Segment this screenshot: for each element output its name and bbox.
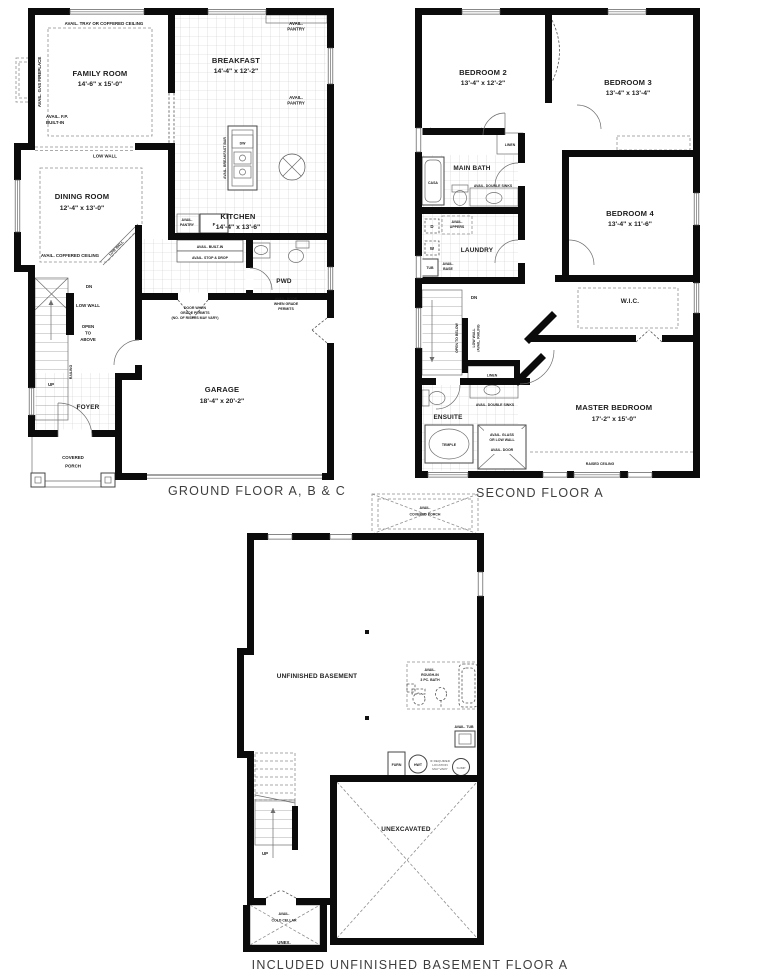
covered-porch-label: COVEREDPORCH: [62, 455, 84, 469]
floor-plan-sheet: AVAIL. TRAY OR COFFERED CEILING FAMILY R…: [0, 0, 767, 976]
unfinished-basement-label: UNFINISHED BASEMENT: [277, 673, 358, 680]
pantry-note-top: AVAIL.PANTRY: [287, 21, 305, 32]
dryer-label: D: [430, 224, 433, 229]
double-sinks-label-2: AVAIL. DOUBLE SINKS: [476, 403, 515, 407]
basement-tub-box: [455, 731, 475, 747]
garage-dims: 18'-4" x 20'-2": [200, 398, 244, 405]
dn-label-2f: DN: [471, 295, 477, 300]
open-to-below-note: OPEN TO BELOW: [455, 322, 459, 352]
basement-windows: [266, 533, 485, 906]
dishwasher-label: DW: [240, 142, 247, 146]
basement-fixtures: [255, 630, 475, 858]
bed2-label: BEDROOM 2: [459, 68, 507, 77]
stop-drop-note: AVAIL. STOP & DROP: [192, 256, 229, 260]
breakfast-bar-note: AVAIL. BREAKFAST BAR: [223, 137, 227, 179]
open-to-above-note: OPENTOABOVE: [80, 324, 96, 342]
fridge-label: F: [213, 222, 216, 227]
railing-note: RAILING: [69, 365, 73, 380]
hwt-label: HWT: [414, 763, 423, 767]
main-bath-label: MAIN BATH: [453, 165, 490, 172]
builtin-note: AVAIL. BUILT-IN: [197, 245, 224, 249]
coffered-ceiling-note: AVAIL. COFFERED CEILING: [41, 253, 100, 258]
casa-tub-label: CASA: [428, 181, 438, 185]
support-post-2: [365, 716, 369, 720]
master-dims: 17'-2" x 15'-0": [592, 416, 636, 423]
ground-floor-plan: AVAIL. TRAY OR COFFERED CEILING FAMILY R…: [14, 8, 347, 499]
linen1-label: LINEN: [505, 143, 516, 147]
avail-door-note: AVAIL. DOOR: [491, 448, 514, 452]
avail-covered-porch-note: AVAIL.COVERED PORCH: [410, 506, 441, 517]
master-label: MASTER BEDROOM: [576, 403, 653, 412]
breakfast-dims: 14'-4" x 12'-2": [214, 68, 258, 75]
gas-fireplace-note: AVAIL. GAS FIREPLACE: [37, 57, 42, 108]
avail-door-grade-note: AVAIL. DOORWHEN GRADEPERMITS: [274, 297, 299, 311]
avail-base-note: AVAIL.BASE: [443, 262, 454, 271]
up-label: UP: [48, 382, 54, 387]
bed3-dims: 13'-4" x 13'-4": [606, 90, 650, 97]
low-wall-railing-note: LOW WALL/AVAIL. RAILING: [472, 324, 481, 352]
wic-label: W.I.C.: [621, 298, 640, 305]
wic-shelving: [578, 288, 678, 328]
furnace-label: FURN: [392, 763, 402, 767]
ground-floor-caption: GROUND FLOOR A, B & C: [168, 484, 346, 498]
ensuite-label: ENSUITE: [433, 414, 463, 421]
foyer-label: FOYER: [76, 404, 99, 411]
dn-label: DN: [86, 284, 92, 289]
basement-plan: AVAIL.COVERED PORCH UNFINISHED BASEMENT …: [237, 494, 568, 972]
low-wall-note-family: LOW WALL: [93, 154, 117, 159]
basement-stairs: [255, 753, 295, 858]
family-room-dims: 14'-6" x 15'-0": [78, 81, 122, 88]
bed3-label: BEDROOM 3: [604, 78, 652, 87]
bed3-closet: [617, 136, 690, 150]
second-floor-plan: BEDROOM 2 13'-4" x 12'-2" BEDROOM 3 13'-…: [415, 8, 701, 501]
dining-room-dims: 12'-4" x 13'-0": [60, 205, 104, 212]
cold-cellar-label: AVAIL.COLD CELLAR: [271, 912, 297, 923]
laundry-tub-label: TUB: [426, 266, 434, 270]
breakfast-label: BREAKFAST: [212, 56, 260, 65]
dining-room-label: DINING ROOM: [55, 192, 110, 201]
linen2-label: LINEN: [487, 374, 498, 378]
low-wall-note-diag: LOW WALL: [108, 240, 125, 257]
up-label-basement: UP: [262, 851, 268, 856]
basement-caption: INCLUDED UNFINISHED BASEMENT FLOOR A: [252, 958, 569, 972]
bed4-dims: 13'-4" x 11'-6": [608, 221, 652, 228]
raised-ceiling-note: RAISED CEILING: [586, 462, 615, 466]
covered-porch-structure: [31, 437, 115, 487]
second-floor-caption: SECOND FLOOR A: [476, 486, 604, 500]
pantry-note-mid: AVAIL.PANTRY: [287, 95, 305, 106]
floor-plan-drawing: AVAIL. TRAY OR COFFERED CEILING FAMILY R…: [0, 0, 767, 976]
double-sinks-label-1: AVAIL. DOUBLE SINKS: [474, 184, 513, 188]
tray-ceiling-note: AVAIL. TRAY OR COFFERED CEILING: [65, 21, 144, 26]
door-grade-note: DOOR WHENGRADE PERMITS(NO. OF RISERS MAY…: [171, 306, 218, 320]
sump-label: SUMP: [457, 766, 466, 770]
unex-label: UNEX.: [277, 940, 290, 945]
support-post-1: [365, 630, 369, 634]
bed2-dims: 13'-4" x 12'-2": [461, 80, 505, 87]
fp-builtin-note: AVAIL. F.P.BUILT-IN: [46, 114, 68, 125]
pantry-note-bottom: AVAIL.PANTRY: [180, 218, 195, 227]
basement-walls: [237, 533, 484, 952]
laundry-label: LAUNDRY: [461, 247, 494, 254]
bed3-closet-door: [552, 20, 560, 82]
bed4-label: BEDROOM 4: [606, 209, 654, 218]
family-room-label: FAMILY ROOM: [73, 69, 128, 78]
kitchen-label: KITCHEN: [220, 212, 255, 221]
low-wall-note-stairs: LOW WALL: [76, 303, 100, 308]
breakfast-table: [279, 154, 305, 180]
if-required-note: IF REQUIREDLOCATIONMAY VARY: [430, 759, 451, 771]
ground-stairs: [35, 278, 68, 420]
avail-tub-note: AVAIL. TUB: [454, 725, 474, 729]
kitchen-island: [228, 126, 257, 190]
garage-label: GARAGE: [205, 385, 240, 394]
temple-tub-label: TEMPLE: [442, 443, 457, 447]
powder-room-label: PWD: [276, 278, 292, 285]
unexcavated-label: UNEXCAVATED: [381, 826, 431, 833]
glass-low-wall-note: AVAIL. GLASSOR LOW WALL: [489, 433, 515, 442]
kitchen-dims: 14'-4" x 13'-6": [216, 224, 260, 231]
